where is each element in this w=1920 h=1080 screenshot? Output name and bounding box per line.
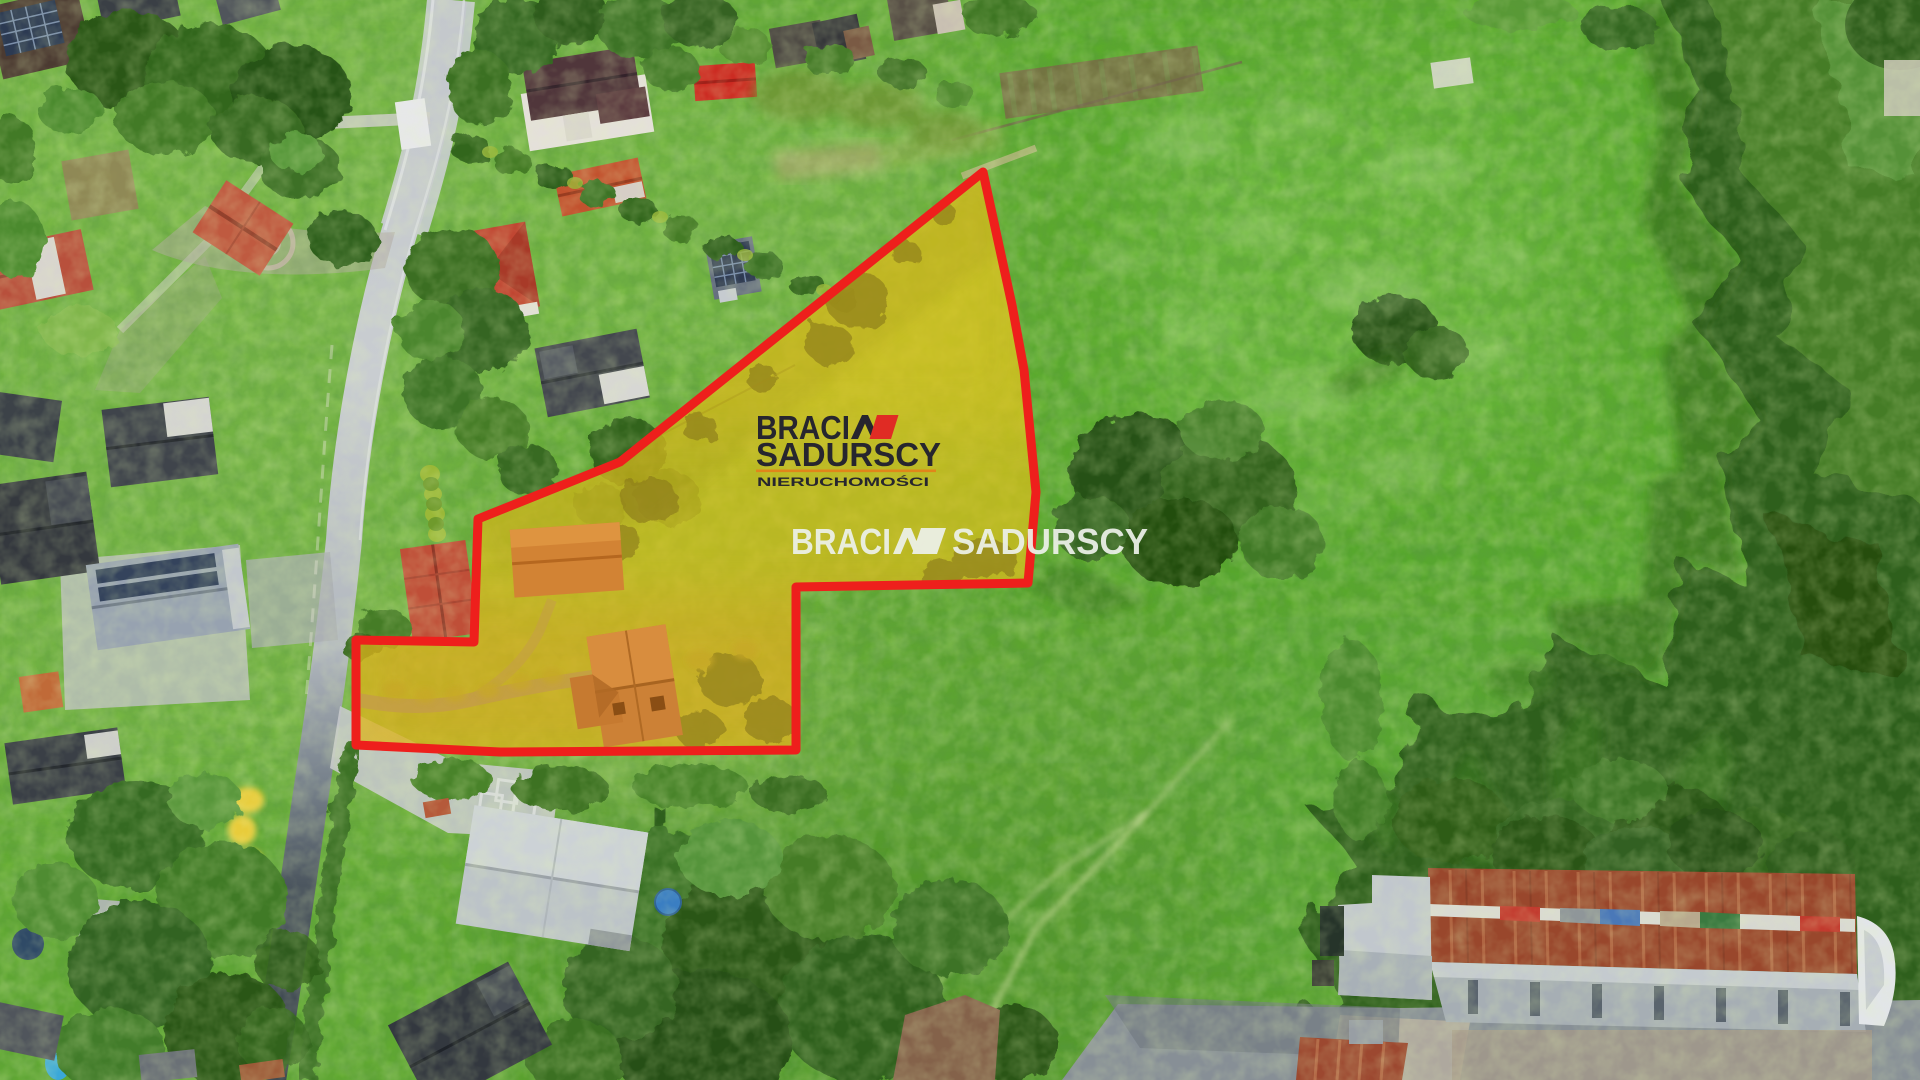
svg-text:NIERUCHOMOŚCI: NIERUCHOMOŚCI [757,474,929,489]
svg-text:SADURSCY: SADURSCY [952,521,1148,562]
svg-text:SADURSCY: SADURSCY [756,436,941,473]
svg-text:BRACI: BRACI [791,521,891,562]
